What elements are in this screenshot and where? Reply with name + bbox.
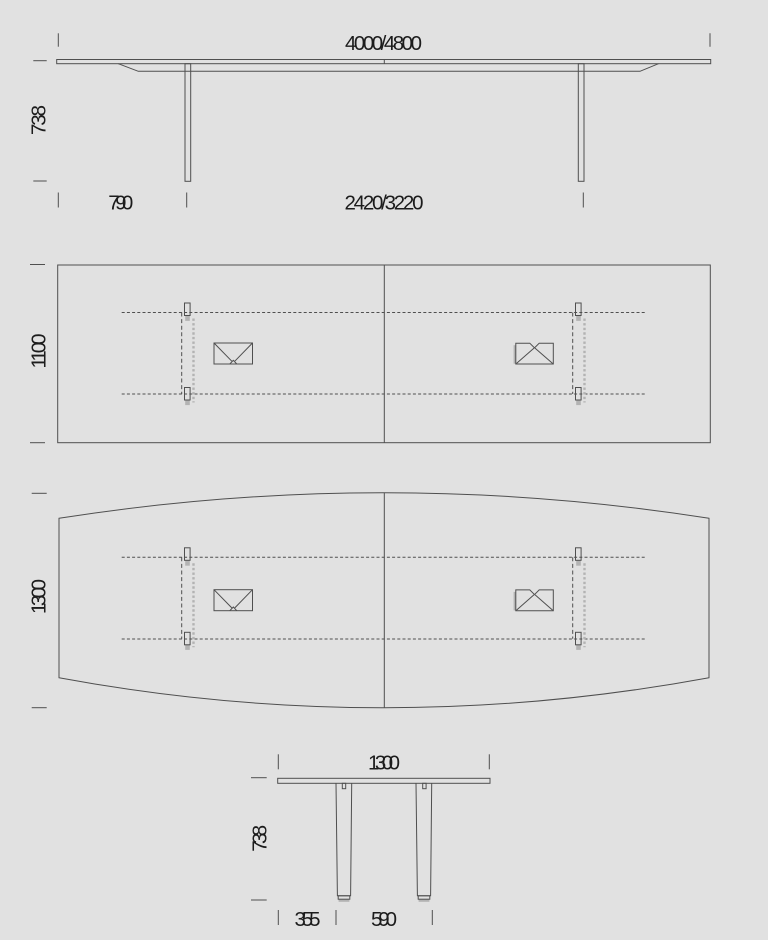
cable-hatch-open-icon — [514, 343, 554, 364]
dim-label-depth: 1100 — [27, 334, 50, 369]
leg-foot-shadow — [419, 899, 430, 901]
frame-apron-line — [118, 64, 658, 72]
table-technical-drawing: 4000/4800 738 790 2420/3220 1100 1300 — [0, 0, 768, 940]
end-elevation-view: 1300 738 355 590 — [248, 751, 490, 931]
leg-foot-shadow — [339, 899, 350, 901]
dim-label-width: 1300 — [368, 751, 400, 774]
dim-label-edge-to-leg: 355 — [295, 908, 321, 931]
dim-label-height: 738 — [28, 105, 51, 135]
top-view-rectangular: 1100 — [27, 265, 710, 443]
leg-top-bolt — [342, 783, 345, 788]
leg-top-bolt — [423, 783, 426, 788]
table-leg-side — [578, 64, 584, 182]
dim-label-overhang: 790 — [108, 192, 133, 215]
top-view-barrel: 1300 — [28, 493, 710, 708]
leg-foot — [338, 896, 350, 899]
dim-label-length: 4000/4800 — [345, 32, 422, 55]
dim-label-depth: 1300 — [28, 579, 51, 614]
hidden-leg-assembly — [182, 548, 194, 650]
leg-foot — [418, 896, 430, 899]
table-leg-side — [185, 64, 191, 182]
side-elevation-view: 4000/4800 738 790 2420/3220 — [28, 32, 711, 215]
cable-hatch-closed-icon — [214, 590, 253, 611]
dim-label-height: 738 — [248, 825, 271, 852]
tabletop-end-profile — [278, 778, 490, 783]
hidden-leg-assembly — [573, 548, 585, 650]
table-leg-end — [416, 783, 432, 896]
drawing-page: 4000/4800 738 790 2420/3220 1100 1300 — [0, 0, 768, 940]
table-leg-end — [336, 783, 352, 896]
cable-hatch-open-icon — [514, 590, 554, 611]
dim-label-leg-spacing: 2420/3220 — [345, 192, 424, 215]
hidden-leg-assembly — [573, 303, 585, 405]
cable-hatch-closed-icon — [214, 343, 253, 364]
hidden-leg-assembly — [182, 303, 194, 405]
tabletop-side-profile — [57, 60, 711, 64]
dim-label-leg-spacing: 590 — [371, 908, 397, 931]
